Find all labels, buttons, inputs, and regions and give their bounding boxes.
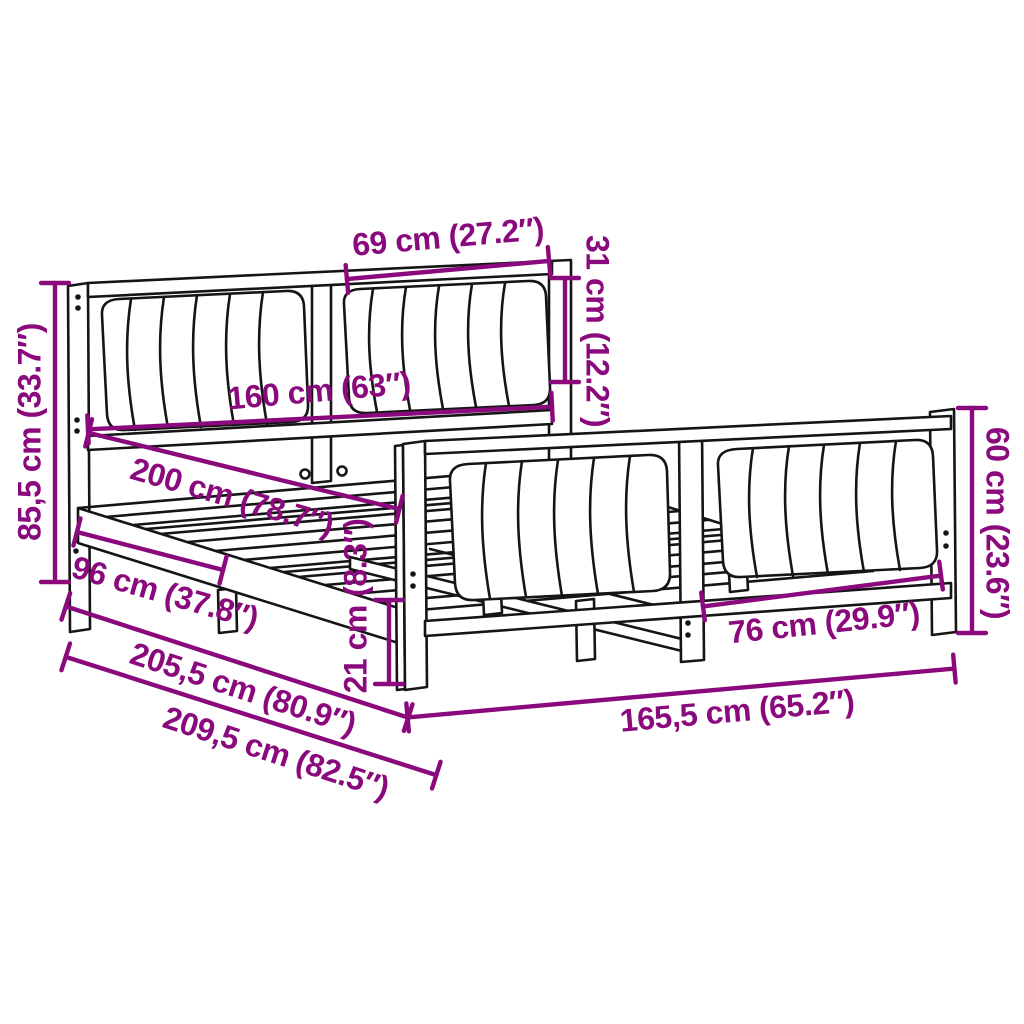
dimension-diagram: 69 cm (27.2″) 31 cm (12.2″) 160 cm (63″)… [0, 0, 1024, 1024]
dimension-label-underbed-clearance: 21 cm (8.3″) [338, 519, 375, 694]
dimension-label-headboard-height: 85,5 cm (33.7″) [12, 323, 49, 541]
dimension-label-footboard-height: 60 cm (23.6″) [979, 427, 1016, 619]
footboard-center-post [679, 430, 704, 662]
dimension-label-headboard-cushion-height: 31 cm (12.2″) [579, 235, 616, 427]
bolt-knob [301, 470, 310, 479]
footboard-left-post [403, 441, 427, 690]
bed-frame-drawing [0, 0, 1024, 1024]
bolt-knob [338, 467, 347, 476]
